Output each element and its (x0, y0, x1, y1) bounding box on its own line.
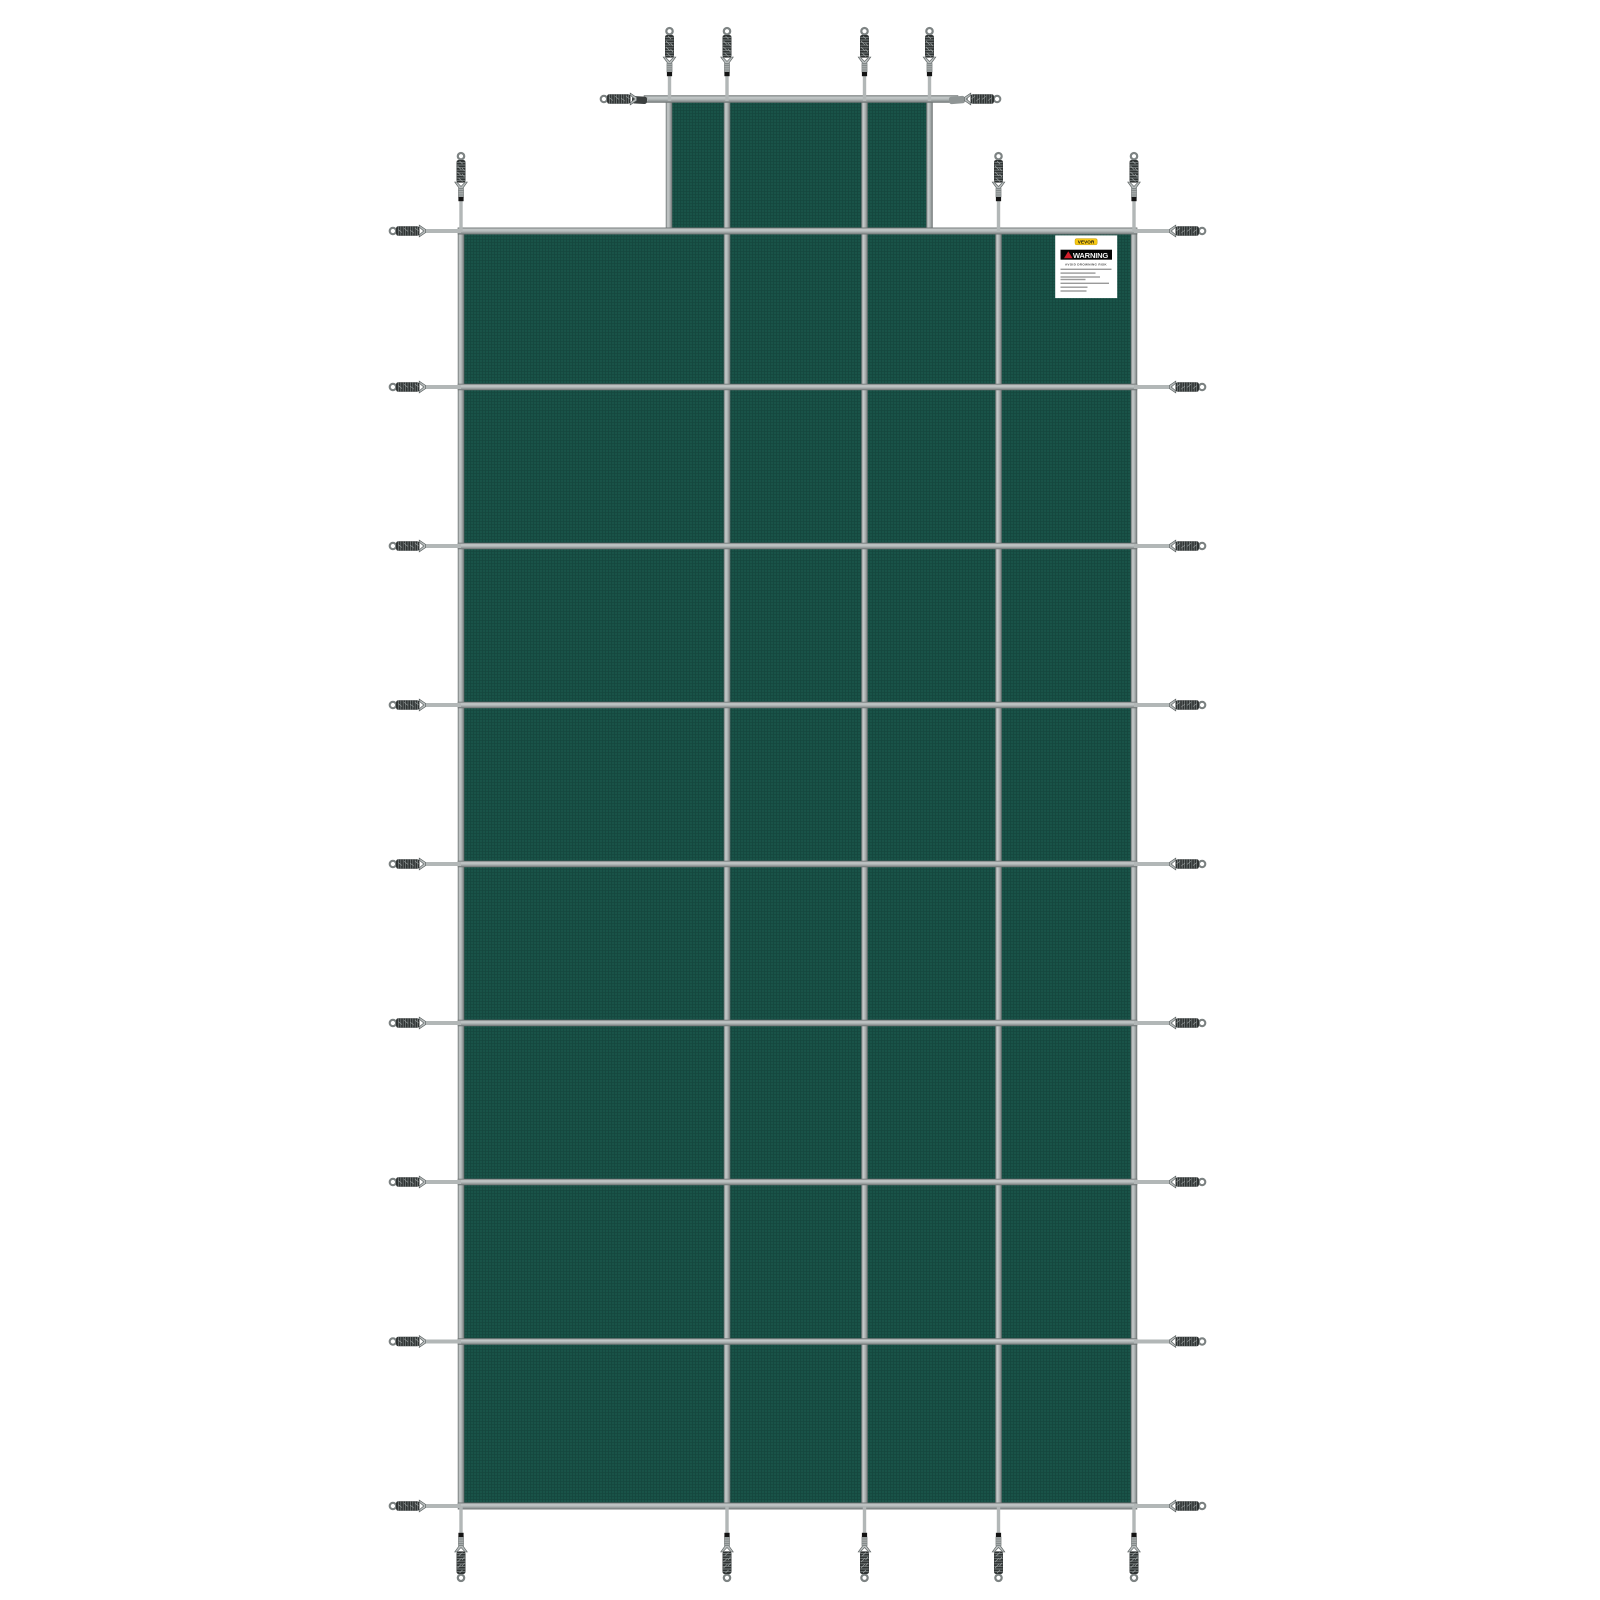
svg-text:WARNING: WARNING (1073, 251, 1109, 260)
svg-text:VEVOR: VEVOR (1078, 240, 1095, 245)
svg-text:AVOID DROWNING RISK: AVOID DROWNING RISK (1065, 263, 1107, 267)
